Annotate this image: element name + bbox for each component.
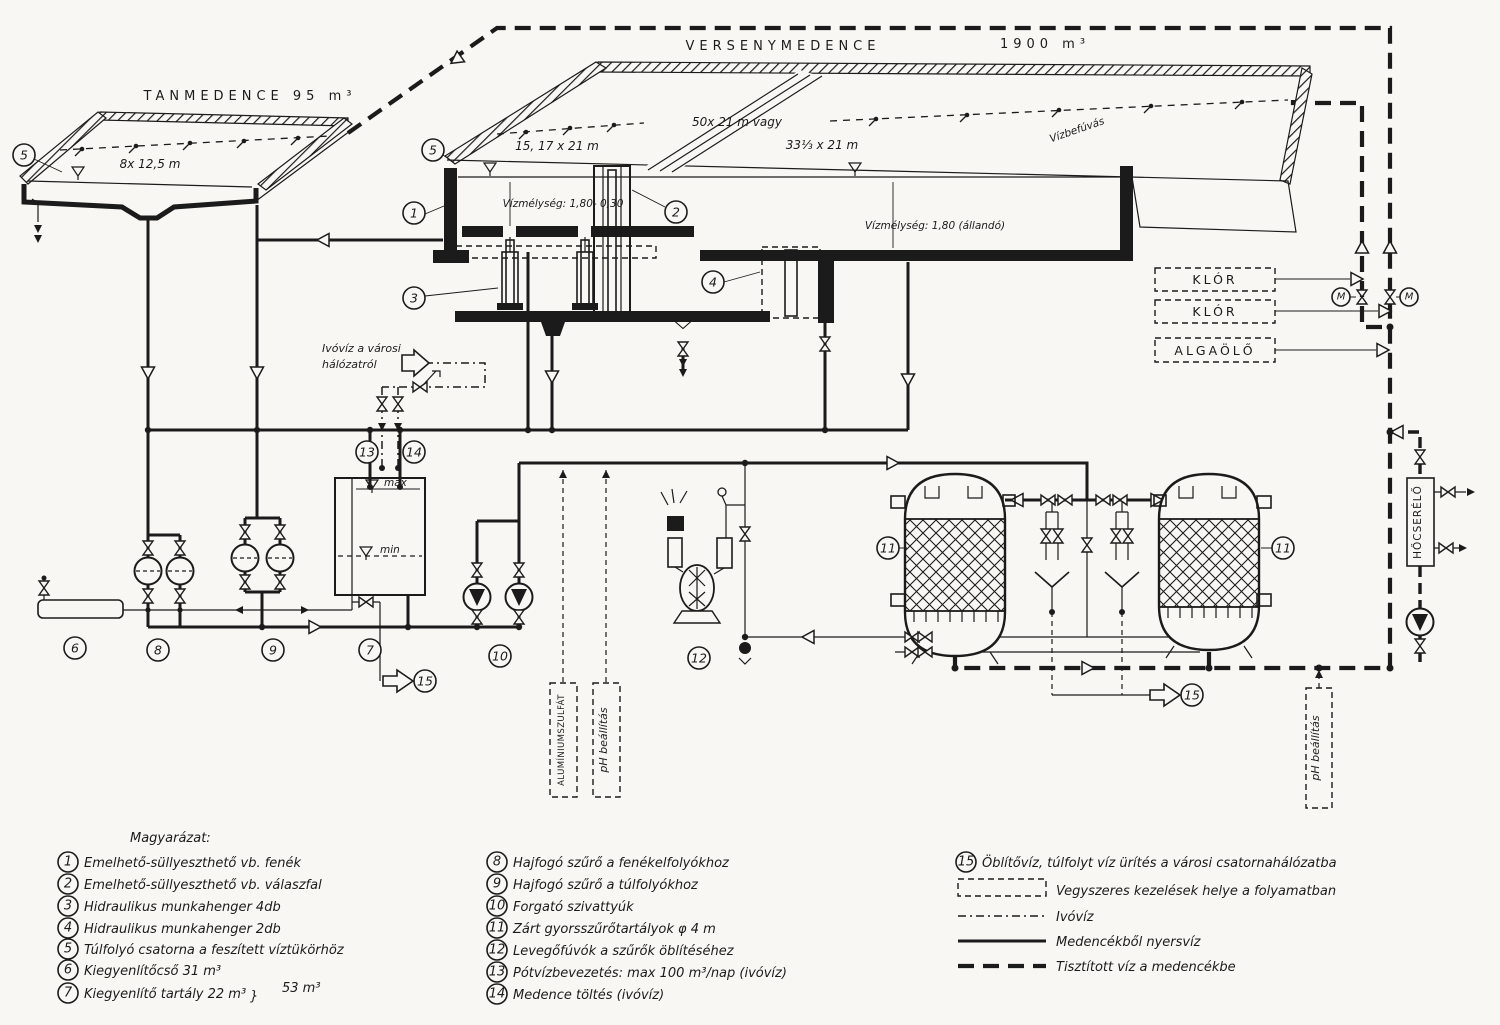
- chlorine-box-2-label: KLÓR: [1192, 304, 1237, 319]
- marker-15: 15: [414, 670, 436, 692]
- legend-item: Forgató szivattyúk: [513, 900, 634, 915]
- svg-text:3: 3: [64, 899, 72, 914]
- svg-text:8: 8: [493, 855, 501, 870]
- svg-text:5: 5: [429, 143, 437, 158]
- marker-9: 9: [262, 639, 284, 661]
- svg-text:1: 1: [64, 855, 72, 870]
- floor-pedestal: [818, 261, 834, 323]
- marker-4: 4: [702, 271, 724, 293]
- marker-10: 10: [489, 645, 511, 667]
- scanned-pool-schematic: Ivóvíz a városi hálózatról TANMEDENCE 95…: [0, 0, 1500, 1025]
- legend-marker: 3: [58, 896, 78, 916]
- svg-text:11: 11: [489, 921, 506, 936]
- legend-marker: 15: [956, 852, 976, 872]
- svg-text:13: 13: [489, 965, 506, 980]
- legend-item: Hajfogó szűrő a túlfolyókhoz: [513, 878, 699, 893]
- legend-marker: 13: [487, 962, 507, 982]
- svg-text:6: 6: [71, 641, 79, 656]
- svg-text:5: 5: [64, 942, 72, 957]
- legend-line-label: Vegyszeres kezelések helye a folyamatban: [1056, 884, 1336, 899]
- legend-marker: 10: [487, 896, 507, 916]
- blower-inlet: [667, 516, 684, 531]
- alum-box-label: ALUMÍNIUMSZULFÁT: [555, 694, 567, 786]
- svg-text:2: 2: [672, 205, 680, 220]
- marker-15: 15: [1181, 684, 1203, 706]
- svg-text:15: 15: [1184, 688, 1200, 703]
- marker-6: 6: [64, 637, 86, 659]
- marker-5: 5: [422, 139, 444, 161]
- legend-brace: }: [250, 989, 258, 1004]
- legend-line-label: Tisztított víz a medencékbe: [1056, 960, 1236, 975]
- heat-exchanger-label: HŐCSERÉLŐ: [1410, 485, 1424, 559]
- blower-base: [674, 611, 720, 623]
- pool-water-treatment-diagram: Ivóvíz a városi hálózatról TANMEDENCE 95…: [0, 0, 1500, 1025]
- versenymedence-title: VERSENYMEDENCE: [686, 39, 881, 54]
- filter-media: [1159, 519, 1259, 607]
- svg-text:5: 5: [20, 148, 28, 163]
- depth-right-label: Vízmélység: 1,80 (állandó): [865, 220, 1005, 232]
- marker-11: 11: [877, 537, 899, 559]
- marker-1: 1: [403, 202, 425, 224]
- svg-text:14: 14: [406, 445, 422, 460]
- svg-text:13: 13: [359, 445, 375, 460]
- motor-valve-icon: M: [1400, 288, 1418, 306]
- svg-text:12: 12: [691, 651, 707, 666]
- city-water-label-1: Ivóvíz a városi: [322, 342, 401, 355]
- legend-item: Emelhető-süllyeszthető vb. fenék: [84, 856, 302, 871]
- marker-3: 3: [403, 287, 425, 309]
- legend-item: Pótvízbevezetés: max 100 m³/nap (ivóvíz): [513, 966, 787, 981]
- legend-line-label: Medencékből nyersvíz: [1056, 935, 1202, 950]
- max-label: max: [384, 477, 408, 489]
- marker-12: 12: [688, 647, 710, 669]
- svg-text:12: 12: [489, 943, 506, 958]
- svg-text:15: 15: [958, 855, 975, 870]
- legend-marker: 5: [58, 939, 78, 959]
- marker-2: 2: [665, 201, 687, 223]
- hair-filter-icon: [167, 558, 194, 585]
- versenymedence-volume: 1900 m³: [1000, 37, 1090, 52]
- legend-item: Medence töltés (ivóvíz): [513, 988, 664, 1003]
- pump-icon: [506, 584, 533, 611]
- hair-filter-icon: [267, 545, 294, 572]
- tanmedence-title: TANMEDENCE 95 m³: [143, 89, 357, 104]
- legend-item: Emelhető-süllyeszthető vb. válaszfal: [84, 878, 322, 893]
- legend-item: Hidraulikus munkahenger 2db: [84, 922, 281, 937]
- dim-combined: 50x 21 m vagy: [692, 115, 783, 129]
- legend-marker: 12: [487, 940, 507, 960]
- legend-marker: 6: [58, 960, 78, 980]
- svg-text:10: 10: [492, 649, 508, 664]
- algicide-box-label: ALGAÖLŐ: [1174, 342, 1255, 358]
- svg-text:4: 4: [64, 921, 72, 936]
- marker-14: 14: [403, 441, 425, 463]
- svg-text:2: 2: [64, 877, 72, 892]
- svg-text:10: 10: [489, 899, 506, 914]
- legend-marker: 4: [58, 918, 78, 938]
- svg-text:8: 8: [154, 643, 162, 658]
- legend-marker: 2: [58, 874, 78, 894]
- city-water-label-2: hálózatról: [322, 358, 377, 371]
- svg-text:1: 1: [410, 206, 418, 221]
- pump-icon: [464, 584, 491, 611]
- tanmedence-dim: 8x 12,5 m: [120, 157, 181, 171]
- paper-background: [0, 0, 1500, 1025]
- pump-icon: [1407, 609, 1434, 636]
- marker-7: 7: [359, 639, 381, 661]
- dim-right: 33⅓ x 21 m: [786, 138, 858, 152]
- chlorine-box-1-label: KLÓR: [1192, 272, 1237, 287]
- legend-item: Hajfogó szűrő a fenékelfolyókhoz: [513, 856, 730, 871]
- dim-left: 15, 17 x 21 m: [515, 139, 599, 153]
- svg-text:M: M: [1405, 292, 1414, 303]
- svg-text:3: 3: [410, 291, 418, 306]
- svg-text:15: 15: [417, 674, 433, 689]
- marker-5: 5: [13, 144, 35, 166]
- legend-marker: 8: [487, 852, 507, 872]
- svg-text:9: 9: [269, 643, 277, 658]
- legend-item: Levegőfúvók a szűrők öblítéséhez: [513, 944, 735, 959]
- min-label: min: [380, 544, 400, 556]
- legend-title: Magyarázat:: [130, 831, 211, 846]
- legend-item: Kiegyenlítő tartály 22 m³: [84, 987, 246, 1002]
- marker-11: 11: [1272, 537, 1294, 559]
- hair-filter-icon: [232, 545, 259, 572]
- svg-text:11: 11: [880, 541, 896, 556]
- hair-filter-icon: [135, 558, 162, 585]
- pool-wall: [1120, 166, 1133, 261]
- svg-text:6: 6: [64, 963, 72, 978]
- pool-floor: [700, 250, 1132, 261]
- svg-text:7: 7: [64, 986, 73, 1001]
- depth-left-label: Vízmélység: 1,80- 0,30: [503, 198, 624, 210]
- legend-line-label: Ivóvíz: [1056, 910, 1095, 925]
- svg-text:9: 9: [493, 877, 501, 892]
- legend-marker: 9: [487, 874, 507, 894]
- pool-wall: [444, 168, 457, 254]
- svg-text:7: 7: [366, 643, 374, 658]
- legend-marker: 14: [487, 984, 507, 1004]
- svg-text:4: 4: [709, 275, 717, 290]
- legend-sum-value: 53 m³: [282, 981, 321, 996]
- marker-13: 13: [356, 441, 378, 463]
- legend-item: Öblítővíz, túlfolyt víz ürítés a városi …: [982, 854, 1337, 871]
- legend-marker: 7: [58, 983, 78, 1003]
- legend-item: Túlfolyó csatorna a feszített víztükörhö…: [84, 943, 345, 958]
- filter-media: [905, 519, 1005, 611]
- legend-marker: 1: [58, 852, 78, 872]
- legend-marker: 11: [487, 918, 507, 938]
- ph-box-right-label: pH beállítás: [1309, 715, 1322, 781]
- svg-text:11: 11: [1275, 541, 1291, 556]
- ph-box-mid-label: pH beállítás: [597, 707, 610, 773]
- svg-text:14: 14: [489, 987, 506, 1002]
- svg-text:M: M: [1337, 292, 1346, 303]
- filter-tank: [1154, 474, 1271, 658]
- motor-valve-icon: M: [1332, 288, 1350, 306]
- drain-ball-icon: [739, 642, 751, 654]
- legend-item: Hidraulikus munkahenger 4db: [84, 900, 281, 915]
- legend-item: Kiegyenlítőcső 31 m³: [84, 964, 221, 979]
- legend-item: Zárt gyorsszűrőtartályok φ 4 m: [512, 922, 716, 937]
- marker-8: 8: [147, 639, 169, 661]
